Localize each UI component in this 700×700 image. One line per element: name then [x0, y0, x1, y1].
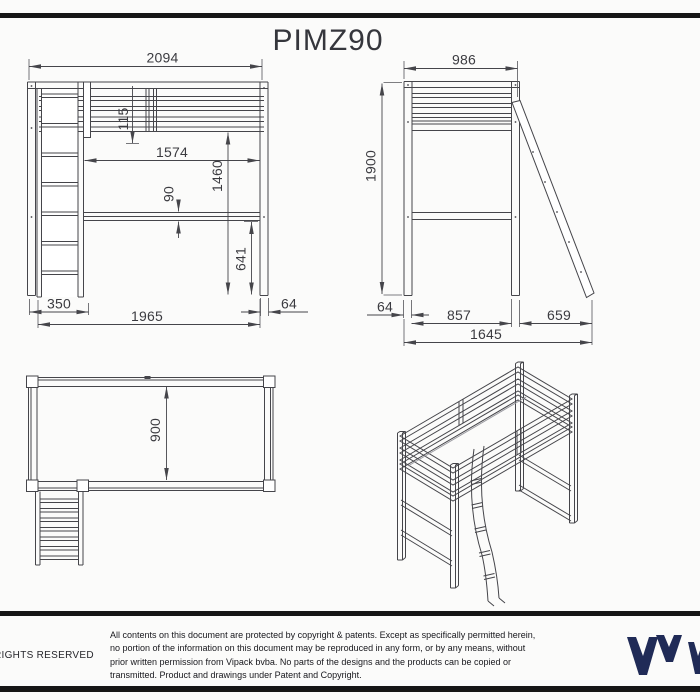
dim-front-ladder-width: 350	[47, 296, 71, 312]
dim-top-bed-width: 900	[147, 418, 163, 442]
dim-side-total-footprint: 1645	[470, 326, 502, 342]
rights-reserved-label: RIGHTS RESERVED	[0, 650, 94, 661]
copyright-line: All contents on this document are protec…	[110, 629, 570, 642]
footer-bottom-border	[0, 686, 700, 692]
dim-front-under-clearance: 641	[233, 247, 249, 271]
dim-side-post-thickness: 64	[377, 299, 393, 315]
dim-front-guardrail-height: 115	[115, 108, 131, 131]
post-corner	[27, 376, 39, 388]
dim-side-ladder-footprint: 659	[547, 307, 571, 323]
isometric-view	[398, 362, 578, 606]
post-corner	[264, 480, 276, 492]
front-view: 2094 115 1574 1460 90 641 350 1965 64	[28, 50, 309, 329]
dim-front-overall-width: 2094	[147, 50, 179, 66]
post-corner	[264, 376, 276, 388]
technical-drawing: 2094 115 1574 1460 90 641 350 1965 64	[0, 0, 700, 700]
ladder-post	[77, 480, 89, 492]
side-view: 986 1900 64 857 659 1645	[363, 52, 595, 347]
dim-front-inner-length: 1574	[156, 144, 188, 160]
front-ladder-bracket	[84, 82, 91, 138]
dim-front-platform-height: 1460	[209, 160, 225, 192]
copyright-notice: All contents on this document are protec…	[110, 629, 570, 683]
vipack-logo-icon	[624, 630, 700, 680]
copyright-line: prior written permission from Vipack bvb…	[110, 656, 570, 669]
copyright-line: no portion of the information on this do…	[110, 642, 570, 655]
dim-side-overall-height: 1900	[363, 150, 379, 182]
dim-side-inner-depth: 857	[447, 307, 471, 323]
dim-side-overall-depth: 986	[452, 52, 476, 68]
front-ladder-underlay	[42, 89, 79, 297]
dim-front-base-length: 1965	[131, 308, 163, 324]
post-corner	[27, 480, 39, 492]
copyright-line: transmitted. Product and drawings under …	[110, 669, 570, 682]
dim-front-rail-thickness: 90	[161, 186, 177, 202]
side-ladder	[512, 101, 594, 298]
footer-top-border	[0, 611, 700, 616]
top-view: 900	[27, 376, 276, 565]
dim-front-post-thickness: 64	[281, 296, 297, 312]
